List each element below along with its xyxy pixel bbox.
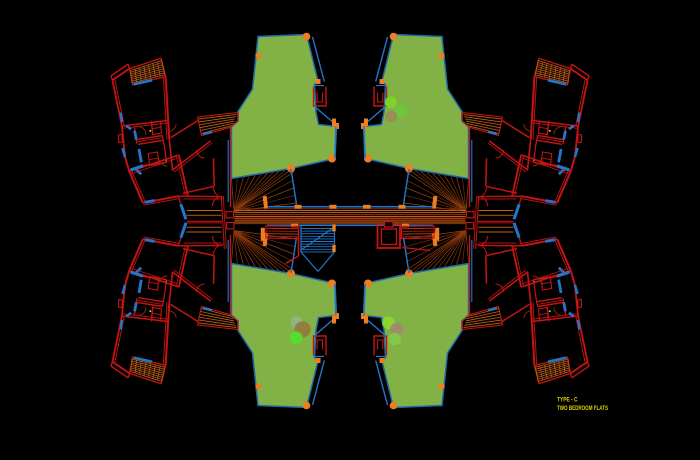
svg-text:TWO BEDROOM FLATS: TWO BEDROOM FLATS [557,405,608,412]
svg-text:TYPE - C: TYPE - C [557,397,578,403]
